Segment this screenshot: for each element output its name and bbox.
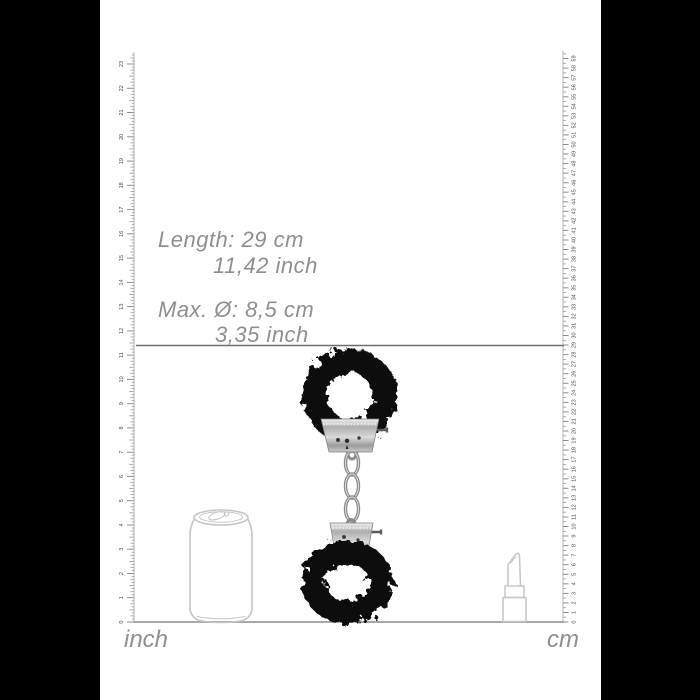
svg-text:5: 5 — [119, 499, 125, 502]
svg-text:46: 46 — [571, 180, 577, 186]
svg-text:53: 53 — [571, 113, 577, 119]
svg-text:1: 1 — [119, 596, 125, 599]
svg-text:4: 4 — [119, 523, 125, 526]
length-cm-text: Length: 29 cm — [158, 227, 304, 253]
svg-text:11: 11 — [119, 352, 125, 358]
svg-text:1: 1 — [571, 611, 577, 614]
letterbox-right — [601, 0, 700, 700]
soda-can-illustration — [190, 510, 252, 623]
diagram-graphics: 01234567891011121314151617181920212223 0… — [100, 0, 601, 700]
diagram-stage: 01234567891011121314151617181920212223 0… — [0, 0, 700, 700]
svg-text:4: 4 — [571, 582, 577, 585]
svg-text:32: 32 — [571, 313, 577, 319]
svg-text:18: 18 — [571, 447, 577, 453]
svg-text:18: 18 — [119, 182, 125, 188]
svg-text:3: 3 — [119, 548, 125, 551]
svg-text:33: 33 — [571, 304, 577, 310]
svg-text:12: 12 — [119, 328, 125, 334]
svg-text:28: 28 — [571, 351, 577, 357]
svg-text:15: 15 — [571, 476, 577, 482]
svg-text:24: 24 — [571, 390, 577, 396]
svg-text:21: 21 — [571, 418, 577, 424]
svg-text:51: 51 — [571, 132, 577, 138]
svg-text:58: 58 — [571, 65, 577, 71]
svg-text:5: 5 — [571, 573, 577, 576]
svg-text:45: 45 — [571, 189, 577, 195]
svg-text:10: 10 — [571, 523, 577, 529]
svg-text:6: 6 — [571, 563, 577, 566]
svg-text:43: 43 — [571, 208, 577, 214]
svg-text:55: 55 — [571, 94, 577, 100]
svg-text:34: 34 — [571, 294, 577, 300]
lipstick-illustration — [503, 553, 526, 621]
svg-text:25: 25 — [571, 380, 577, 386]
cm-ruler: 0123456789101112131415161718192021222324… — [563, 51, 577, 624]
svg-text:14: 14 — [119, 279, 125, 285]
svg-text:48: 48 — [571, 160, 577, 166]
bottom-cuff-key — [371, 530, 381, 535]
svg-text:49: 49 — [571, 151, 577, 157]
svg-text:54: 54 — [571, 103, 577, 109]
svg-text:29: 29 — [571, 342, 577, 348]
svg-text:42: 42 — [571, 218, 577, 224]
diameter-inch-text: 3,35 inch — [215, 322, 309, 348]
svg-text:10: 10 — [119, 376, 125, 382]
svg-text:39: 39 — [571, 246, 577, 252]
svg-text:0: 0 — [571, 620, 577, 623]
svg-text:21: 21 — [119, 109, 125, 115]
svg-text:31: 31 — [571, 323, 577, 329]
svg-text:15: 15 — [119, 255, 125, 261]
svg-text:11: 11 — [571, 514, 577, 520]
cuff-chain — [346, 445, 359, 535]
svg-text:9: 9 — [571, 534, 577, 537]
bottom-cuff-fur — [303, 542, 391, 622]
svg-text:14: 14 — [571, 485, 577, 491]
svg-text:17: 17 — [571, 456, 577, 462]
svg-text:52: 52 — [571, 122, 577, 128]
svg-text:7: 7 — [119, 451, 125, 454]
svg-text:8: 8 — [119, 426, 125, 429]
svg-text:8: 8 — [571, 544, 577, 547]
svg-text:20: 20 — [571, 428, 577, 434]
svg-text:12: 12 — [571, 504, 577, 510]
svg-text:35: 35 — [571, 285, 577, 291]
svg-text:41: 41 — [571, 227, 577, 233]
svg-text:23: 23 — [571, 399, 577, 405]
svg-text:27: 27 — [571, 361, 577, 367]
svg-text:26: 26 — [571, 371, 577, 377]
inch-ruler: 01234567891011121314151617181920212223 — [119, 52, 134, 624]
svg-text:16: 16 — [571, 466, 577, 472]
cm-ruler-label: cm — [547, 626, 579, 654]
svg-text:56: 56 — [571, 84, 577, 90]
svg-text:20: 20 — [119, 134, 125, 140]
letterbox-left — [0, 0, 100, 700]
svg-text:30: 30 — [571, 332, 577, 338]
svg-text:13: 13 — [571, 495, 577, 501]
svg-text:59: 59 — [571, 55, 577, 61]
svg-text:44: 44 — [571, 199, 577, 205]
svg-text:47: 47 — [571, 170, 577, 176]
svg-text:57: 57 — [571, 74, 577, 80]
top-cuff-lock — [321, 419, 387, 452]
svg-text:23: 23 — [119, 61, 125, 67]
svg-text:0: 0 — [119, 620, 125, 623]
svg-text:3: 3 — [571, 592, 577, 595]
svg-text:40: 40 — [571, 237, 577, 243]
svg-text:22: 22 — [119, 85, 125, 91]
svg-text:6: 6 — [119, 475, 125, 478]
svg-text:19: 19 — [571, 437, 577, 443]
svg-text:7: 7 — [571, 554, 577, 557]
svg-text:16: 16 — [119, 231, 125, 237]
svg-text:2: 2 — [119, 572, 125, 575]
svg-text:37: 37 — [571, 265, 577, 271]
svg-text:22: 22 — [571, 409, 577, 415]
svg-text:13: 13 — [119, 303, 125, 309]
handcuffs-illustration — [303, 350, 396, 622]
svg-text:2: 2 — [571, 601, 577, 604]
length-inch-text: 11,42 inch — [213, 253, 318, 279]
svg-text:19: 19 — [119, 158, 125, 164]
diagram-canvas: 01234567891011121314151617181920212223 0… — [100, 0, 601, 700]
svg-text:38: 38 — [571, 256, 577, 262]
svg-text:17: 17 — [119, 206, 125, 212]
svg-text:50: 50 — [571, 141, 577, 147]
diameter-cm-text: Max. Ø: 8,5 cm — [158, 297, 314, 323]
svg-text:9: 9 — [119, 402, 125, 405]
inch-ruler-label: inch — [124, 626, 168, 654]
svg-text:36: 36 — [571, 275, 577, 281]
